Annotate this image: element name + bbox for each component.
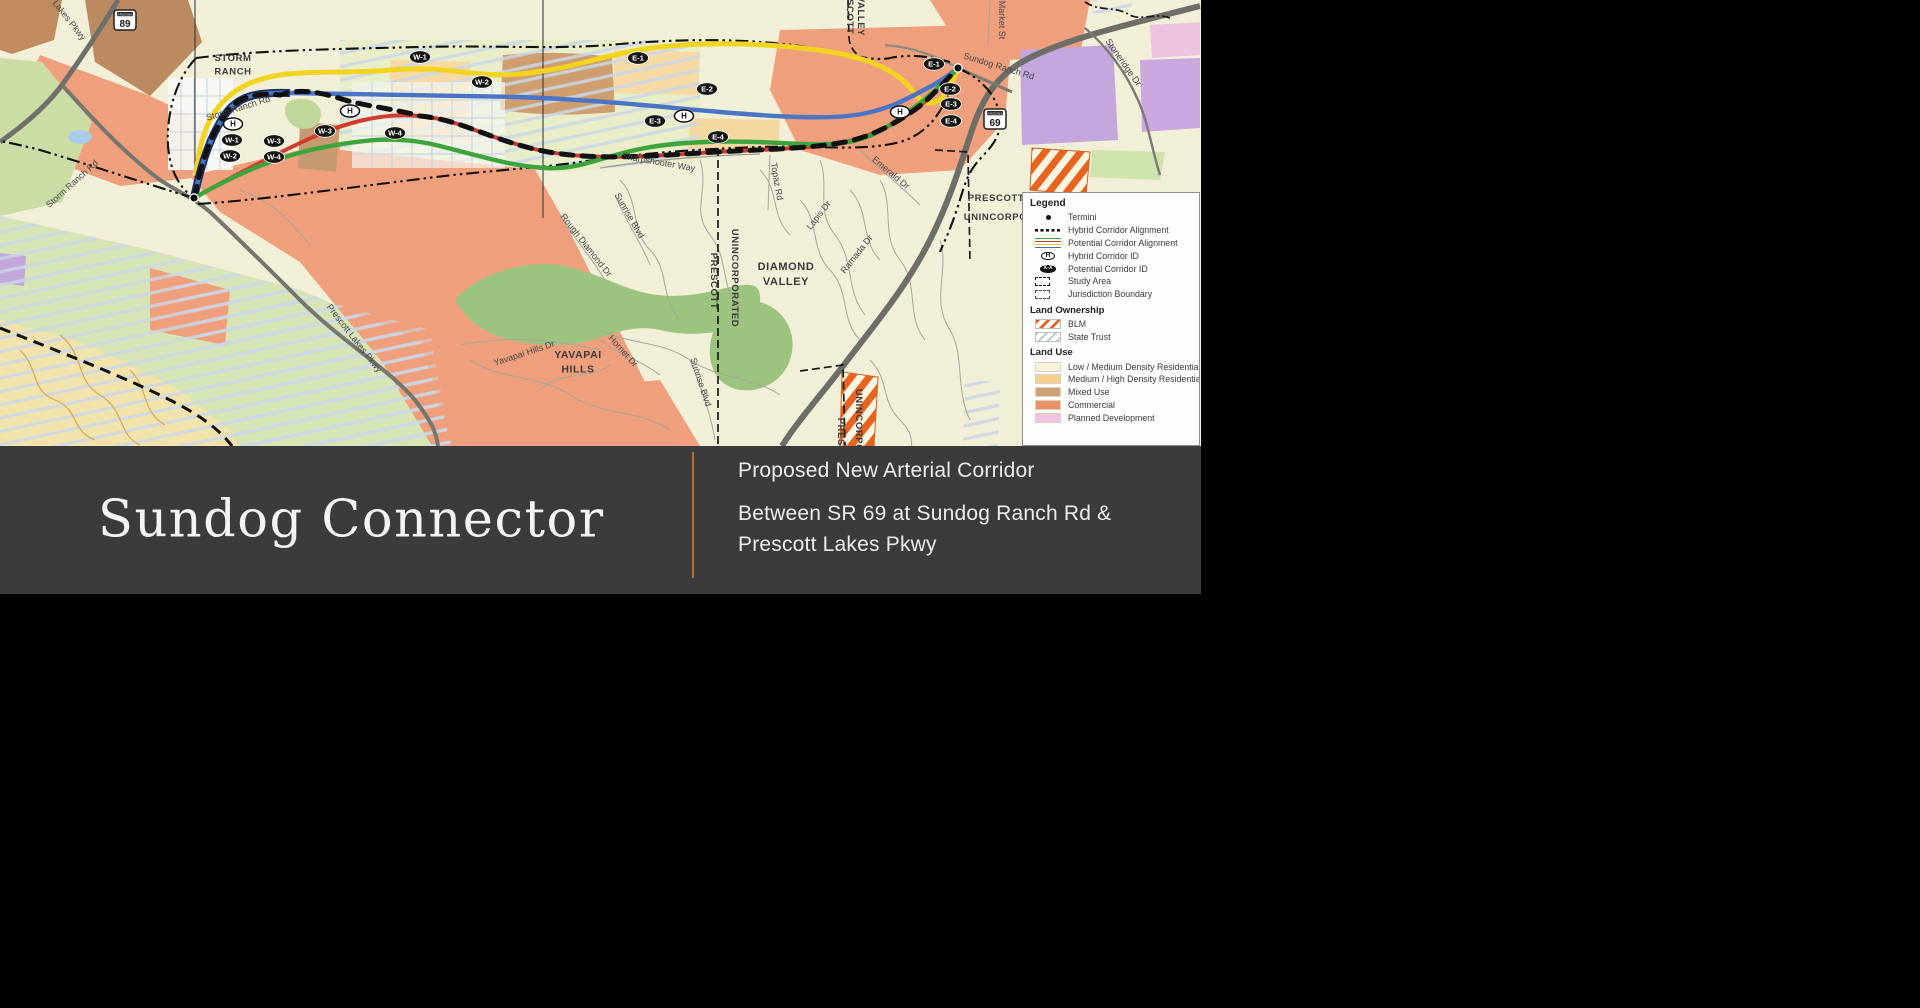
- svg-text:E-2: E-2: [944, 85, 956, 94]
- termini-dot-swatch: [1035, 212, 1061, 222]
- svg-text:ARIZONA: ARIZONA: [987, 111, 1002, 115]
- corridor-id-badge: W-4: [385, 127, 406, 140]
- solid-swatch: [1035, 374, 1061, 384]
- legend-item-label: Commercial: [1068, 400, 1115, 410]
- hybrid-corridor-id-badge: H: [341, 105, 360, 117]
- svg-text:H: H: [681, 112, 687, 121]
- legend-items: TerminiHybrid Corridor AlignmentPotentia…: [1028, 211, 1199, 301]
- legend-item: HHybrid Corridor ID: [1028, 249, 1199, 262]
- place-label: PRESCOTT: [835, 418, 846, 446]
- svg-text:E-3: E-3: [649, 117, 661, 126]
- legend-land-ownership-items: BLMState Trust: [1028, 318, 1199, 344]
- legend-item: Low / Medium Density Residential: [1028, 360, 1199, 373]
- svg-text:W-3: W-3: [318, 127, 332, 136]
- place-label: PRESCOTT: [708, 253, 719, 310]
- legend-item-label: Mixed Use: [1068, 387, 1110, 397]
- legend-item: State Trust: [1028, 330, 1199, 343]
- legend-item-label: Hybrid Corridor Alignment: [1068, 225, 1169, 235]
- corridor-id-badge: W-3: [315, 125, 336, 138]
- svg-text:W-4: W-4: [388, 129, 403, 138]
- corridor-id-badge: E-2: [940, 83, 961, 96]
- title-band: Sundog Connector Proposed New Arterial C…: [0, 446, 1201, 594]
- svg-text:E-4: E-4: [712, 133, 725, 142]
- legend-item: X-XPotential Corridor ID: [1028, 262, 1199, 275]
- legend-item-label: Planned Development: [1068, 413, 1155, 423]
- corridor-id-badge: E-1: [924, 58, 945, 71]
- route-shield-69: ARIZONA69: [984, 109, 1006, 129]
- svg-text:E-2: E-2: [701, 85, 713, 94]
- legend-oval-glyph: H: [1041, 252, 1055, 261]
- svg-text:H: H: [230, 120, 236, 129]
- corridor-id-badge: W-1: [222, 134, 243, 147]
- road-label: Market St: [997, 1, 1007, 40]
- place-label: PRESCOTT: [968, 193, 1025, 204]
- map-svg: HW-1W-2W-3W-4HW-3W-4W-1W-2E-1E-2E-3HE-4H…: [0, 0, 1201, 446]
- blm-hatch-swatch: [1035, 319, 1061, 329]
- place-label: UNINCORPORATED: [853, 389, 864, 446]
- svg-text:W-2: W-2: [223, 152, 237, 161]
- legend-item-label: BLM: [1068, 319, 1086, 329]
- svg-text:E-1: E-1: [928, 60, 941, 69]
- legend-item-label: State Trust: [1068, 332, 1111, 342]
- legend-item: Potential Corridor Alignment: [1028, 237, 1199, 250]
- legend-item: Study Area: [1028, 275, 1199, 288]
- corridor-id-badge: W-2: [220, 150, 241, 163]
- legend-item-label: Potential Corridor ID: [1068, 264, 1148, 274]
- route-shield-89: ARIZONA89: [114, 10, 136, 30]
- legend-item: Hybrid Corridor Alignment: [1028, 224, 1199, 237]
- svg-text:E-1: E-1: [632, 54, 645, 63]
- corridor-id-badge: E-3: [941, 98, 962, 111]
- legend-item: Medium / High Density Residential: [1028, 373, 1199, 386]
- title-divider: [692, 452, 694, 578]
- terminus-dot: [190, 194, 198, 202]
- corridor-id-badge: E-4: [708, 131, 729, 144]
- pond: [68, 130, 92, 144]
- corridor-id-badge: E-1: [628, 52, 649, 65]
- hybrid-corridor-id-badge: H: [891, 106, 910, 118]
- slide-title: Sundog Connector: [98, 491, 605, 550]
- legend-item: Mixed Use: [1028, 386, 1199, 399]
- corridor-id-badge: W-1: [410, 51, 431, 64]
- corridor-id-badge: W-3: [264, 135, 285, 148]
- place-label: VALLEY: [855, 0, 866, 36]
- corridor-id-badge: W-4: [264, 151, 285, 164]
- hybrid-line-swatch: [1035, 225, 1061, 235]
- corridor-id-badge: W-2: [472, 76, 493, 89]
- svg-text:E-3: E-3: [945, 100, 957, 109]
- legend-land-use-items: Low / Medium Density ResidentialMedium /…: [1028, 360, 1199, 424]
- svg-text:W-4: W-4: [267, 153, 282, 162]
- legend-item: BLM: [1028, 318, 1199, 331]
- legend-item: Commercial: [1028, 399, 1199, 412]
- map-legend: Legend TerminiHybrid Corridor AlignmentP…: [1022, 192, 1200, 446]
- svg-text:69: 69: [989, 118, 1001, 129]
- corridor-id-badge: E-3: [645, 115, 666, 128]
- hybrid-corridor-id-badge: H: [675, 110, 694, 122]
- corridor-map: HW-1W-2W-3W-4HW-3W-4W-1W-2E-1E-2E-3HE-4H…: [0, 0, 1201, 446]
- legend-item-label: Potential Corridor Alignment: [1068, 238, 1178, 248]
- svg-text:ARIZONA: ARIZONA: [117, 12, 132, 16]
- legend-item-label: Termini: [1068, 212, 1096, 222]
- legend-item-label: Jurisdiction Boundary: [1068, 289, 1152, 299]
- terminus-dot: [954, 64, 962, 72]
- land-use-title: Land Use: [1030, 347, 1199, 358]
- solid-swatch: [1035, 387, 1061, 397]
- svg-text:E-4: E-4: [945, 117, 958, 126]
- state-trust-hatch-swatch: [1035, 332, 1061, 342]
- hybrid-corridor-id-badge: H: [224, 118, 243, 130]
- place-label: UNINCORPORATED: [729, 229, 740, 327]
- legend-item: Planned Development: [1028, 411, 1199, 424]
- legend-item-label: Low / Medium Density Residential: [1068, 362, 1200, 372]
- potential-lines-swatch: [1035, 238, 1061, 248]
- legend-item-label: Hybrid Corridor ID: [1068, 251, 1139, 261]
- land-ownership-title: Land Ownership: [1030, 305, 1199, 316]
- solid-swatch: [1035, 413, 1061, 423]
- subtitle-between-line: Between SR 69 at Sundog Ranch Rd &: [738, 502, 1111, 525]
- place-label: PRESCOTT: [844, 0, 855, 34]
- slide[interactable]: HW-1W-2W-3W-4HW-3W-4W-1W-2E-1E-2E-3HE-4H…: [0, 0, 1201, 594]
- subtitle-line-1: Proposed New Arterial Corridor: [738, 459, 1035, 483]
- hybrid-id-swatch: H: [1035, 251, 1061, 261]
- study-area-swatch: [1035, 277, 1050, 286]
- solid-swatch: [1035, 400, 1061, 410]
- svg-text:H: H: [347, 107, 353, 116]
- solid-swatch: [1035, 362, 1061, 372]
- svg-text:W-1: W-1: [225, 136, 240, 145]
- svg-text:W-1: W-1: [413, 53, 428, 62]
- legend-item-label: Study Area: [1068, 276, 1111, 286]
- presentation-stage: HW-1W-2W-3W-4HW-3W-4W-1W-2E-1E-2E-3HE-4H…: [0, 0, 1920, 1008]
- corridor-id-badge: E-4: [941, 115, 962, 128]
- svg-text:89: 89: [119, 19, 131, 30]
- legend-oval-glyph: X-X: [1040, 265, 1056, 273]
- potential-id-swatch: X-X: [1035, 264, 1061, 274]
- subtitle-pkwy-line: Prescott Lakes Pkwy: [738, 533, 937, 556]
- legend-item: Jurisdiction Boundary: [1028, 288, 1199, 301]
- svg-text:H: H: [897, 108, 903, 117]
- legend-title: Legend: [1030, 198, 1199, 209]
- subtitle-line-2: Between SR 69 at Sundog Ranch Rd & Presc…: [738, 498, 1158, 560]
- legend-item-label: Medium / High Density Residential: [1068, 374, 1200, 384]
- legend-item: Termini: [1028, 211, 1199, 224]
- jurisdiction-swatch: [1035, 290, 1050, 299]
- corridor-id-badge: E-2: [697, 83, 718, 96]
- svg-text:W-3: W-3: [267, 137, 281, 146]
- svg-text:W-2: W-2: [475, 78, 489, 87]
